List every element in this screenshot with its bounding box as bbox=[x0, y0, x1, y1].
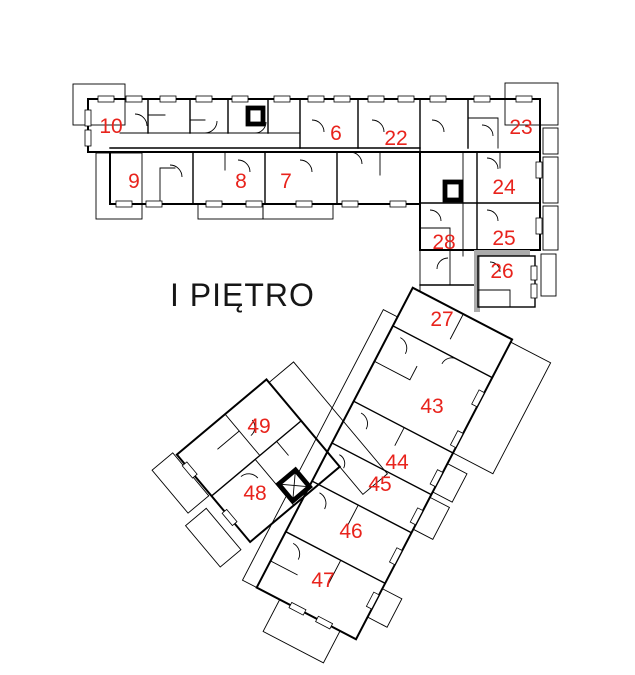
room-label-44: 44 bbox=[385, 451, 409, 474]
room-label-10: 10 bbox=[99, 115, 122, 138]
lower-partitions bbox=[193, 152, 337, 204]
right-wing bbox=[420, 128, 558, 312]
upper-sub-walls bbox=[148, 115, 498, 148]
main-band-sub-walls bbox=[271, 288, 468, 590]
floorplan-drawing: I PIĘTRO 10 9 8 7 6 22 23 24 25 26 28 27… bbox=[0, 0, 635, 675]
room-label-25: 25 bbox=[492, 227, 515, 250]
gray-wall-horizontal bbox=[477, 250, 530, 256]
corridor-strip bbox=[242, 310, 397, 588]
room-label-22: 22 bbox=[384, 127, 407, 150]
room-label-9: 9 bbox=[128, 170, 140, 193]
room-label-48: 48 bbox=[243, 482, 266, 505]
room-label-24: 24 bbox=[492, 176, 516, 199]
room-label-43: 43 bbox=[420, 395, 443, 418]
gray-wall-vertical bbox=[474, 250, 480, 312]
elevator-core-icon bbox=[246, 106, 265, 126]
room-label-46: 46 bbox=[339, 520, 362, 543]
upper-room-band bbox=[88, 99, 540, 152]
balcony-right-2 bbox=[543, 157, 558, 203]
stair-core-icon bbox=[276, 467, 313, 504]
room-label-27: 27 bbox=[430, 308, 453, 331]
room-label-45: 45 bbox=[368, 473, 391, 496]
terrace-northeast bbox=[453, 342, 551, 474]
door-arcs-diagonal-main bbox=[288, 331, 457, 581]
room-label-49: 49 bbox=[247, 415, 270, 438]
room-label-28: 28 bbox=[432, 231, 455, 254]
room-label-47: 47 bbox=[311, 569, 334, 592]
room-label-7: 7 bbox=[280, 170, 292, 193]
balcony-right-3 bbox=[543, 206, 558, 250]
floor-title: I PIĘTRO bbox=[170, 277, 315, 313]
right-wing-sub-walls bbox=[420, 152, 500, 292]
elevator-core-icon bbox=[443, 180, 463, 202]
diagonal-wing-west bbox=[144, 356, 387, 595]
balcony-right-1 bbox=[543, 128, 558, 154]
balcony-right-4 bbox=[541, 254, 556, 296]
room-label-26: 26 bbox=[490, 260, 513, 283]
west-block-body bbox=[177, 379, 340, 542]
room-label-8: 8 bbox=[235, 170, 247, 193]
room-label-23: 23 bbox=[509, 116, 532, 139]
windows-diagonal-main bbox=[289, 358, 484, 641]
room-26-sub-walls bbox=[478, 290, 510, 307]
room-labels: 10 9 8 7 6 22 23 24 25 26 28 27 43 44 45… bbox=[99, 115, 532, 592]
room-label-6: 6 bbox=[330, 122, 342, 145]
floorplan-page: I PIĘTRO 10 9 8 7 6 22 23 24 25 26 28 27… bbox=[0, 0, 635, 675]
upper-partitions bbox=[148, 99, 468, 152]
door-arcs-top bbox=[135, 114, 493, 177]
